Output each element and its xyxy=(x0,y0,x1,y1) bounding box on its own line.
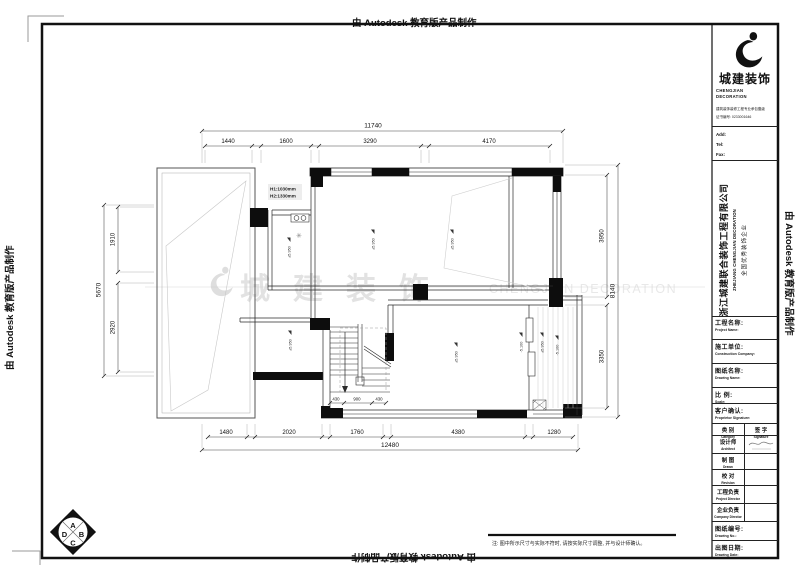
brand-en-line2: DECORATION xyxy=(716,94,747,99)
vent-symbol xyxy=(291,214,309,222)
field-drawing-date: 出图日期: Drawing Date: xyxy=(712,541,778,558)
chengjian-logo xyxy=(729,31,765,71)
contact-add: Add: xyxy=(716,132,726,137)
plant-symbol: ✳ xyxy=(296,232,302,240)
dim-left-total: 5670 xyxy=(96,282,103,297)
svg-text:3290: 3290 xyxy=(363,139,377,145)
svg-text:±5.950: ±5.950 xyxy=(455,351,459,363)
svg-text:B: B xyxy=(79,530,85,539)
svg-text:A: A xyxy=(70,521,76,530)
svg-text:C: C xyxy=(70,539,76,548)
field-construction-company: 施工单位: Construction Company: xyxy=(712,340,778,364)
signature-scribble xyxy=(744,436,778,454)
svg-text:±5.950: ±5.950 xyxy=(288,246,292,258)
svg-text:±5.950: ±5.950 xyxy=(451,238,455,250)
company-honor: 全国优秀装饰企业 xyxy=(740,175,748,325)
divider xyxy=(712,160,778,161)
field-scale: 比 例: Scale: xyxy=(712,388,778,404)
note-box: 注: 图中所示尺寸与实际不符时, 请按实际尺寸调整, 并与设计师确认。 xyxy=(488,535,676,547)
cert-line1: 建筑装饰装修工程专业承包壹级 xyxy=(716,107,765,112)
floorplan-canvas: 城建装饰 CHENGJIAN DECORATION xyxy=(0,0,800,566)
svg-text:1910: 1910 xyxy=(111,232,117,246)
staircase xyxy=(330,324,390,393)
company-name-en: ZHEJIANG CHENGJIAN DECORATION xyxy=(732,175,737,325)
autodesk-watermark-bottom: 由 Autodesk 教育版产品制作 xyxy=(356,550,476,562)
table-row-architect: 设计师 Architect xyxy=(712,436,744,454)
svg-text:430: 430 xyxy=(375,397,383,402)
drawing-sheet: 城建装饰 CHENGJIAN DECORATION xyxy=(0,0,800,566)
cert-line2: 证书编号: 0233001646 xyxy=(716,115,751,120)
svg-text:4380: 4380 xyxy=(451,430,465,436)
svg-text:3350: 3350 xyxy=(600,349,606,363)
svg-text:1760: 1760 xyxy=(350,430,364,436)
table-row-project-director: 工程负责 Project Director xyxy=(712,486,744,504)
svg-text:1440: 1440 xyxy=(221,139,235,145)
svg-text:4170: 4170 xyxy=(482,139,496,145)
svg-text:2920: 2920 xyxy=(111,320,117,334)
svg-text:±5.950: ±5.950 xyxy=(372,238,376,250)
sill-height-note: H1:1030mm H2:1330mm xyxy=(268,184,302,200)
field-project-name: 工程名称: Project Name: xyxy=(712,316,778,340)
company-name-cn: 浙江城建联合装饰工程有限公司 xyxy=(717,175,730,325)
svg-text:1600: 1600 xyxy=(279,139,293,145)
roof-slope-lines xyxy=(166,181,246,411)
table-header-category: 类 别 Category xyxy=(712,424,744,436)
svg-text:1280: 1280 xyxy=(547,430,561,436)
svg-text:1480: 1480 xyxy=(219,430,233,436)
company-name-block: 浙江城建联合装饰工程有限公司 ZHEJIANG CHENGJIAN DECORA… xyxy=(717,175,773,325)
note-text: 注: 图中所示尺寸与实际不符时, 请按实际尺寸调整, 并与设计师确认。 xyxy=(492,540,645,547)
architect-signature-cell xyxy=(744,436,778,454)
brand-en-line1: CHENGJIAN xyxy=(716,88,743,93)
svg-text:2020: 2020 xyxy=(282,430,296,436)
table-row-drawn: 制 图 Drawn xyxy=(712,454,744,470)
dim-right-total: 8140 xyxy=(610,283,617,298)
autodesk-watermark-left: 由 Autodesk 教育版产品制作 xyxy=(5,250,17,370)
svg-text:D: D xyxy=(62,530,68,539)
field-proprietor-signature: 客户确认: Proprietor Signature: xyxy=(712,404,778,424)
svg-text:H2:1330mm: H2:1330mm xyxy=(270,194,296,199)
svg-text:±5.950: ±5.950 xyxy=(541,341,545,353)
title-block: 城建装饰 CHENGJIAN DECORATION 建筑装饰装修工程专业承包壹级… xyxy=(712,24,778,558)
svg-text:430: 430 xyxy=(332,397,340,402)
field-drawing-no: 图纸编号: Drawing No.: xyxy=(712,522,778,541)
deck-boards xyxy=(538,307,573,408)
svg-text:-5.100: -5.100 xyxy=(520,342,524,353)
autodesk-watermark-top: 由 Autodesk 教育版产品制作 xyxy=(352,18,472,30)
orientation-compass: A B C D xyxy=(50,509,96,555)
brand-name: 城建装饰 xyxy=(712,70,778,87)
svg-text:-5.100: -5.100 xyxy=(556,345,560,356)
dim-top-total: 11740 xyxy=(364,123,382,130)
field-drawing-name: 图纸名称: Drawing Name: xyxy=(712,364,778,388)
dim-bottom-total: 12480 xyxy=(381,442,399,449)
table-header-signature: 签 字 Signature xyxy=(744,424,778,436)
autodesk-watermark-right: 由 Autodesk 教育版产品制作 xyxy=(782,211,794,331)
svg-text:3950: 3950 xyxy=(600,229,606,243)
divider xyxy=(712,126,778,127)
table-row-revision: 校 对 Revision xyxy=(712,470,744,486)
roof-slope-line-2 xyxy=(444,178,545,290)
svg-text:H1:1030mm: H1:1030mm xyxy=(270,187,296,192)
svg-text:±5.950: ±5.950 xyxy=(289,339,293,351)
contact-fax: Fax: xyxy=(716,152,725,157)
contact-tel: Tel: xyxy=(716,142,723,147)
table-row-company-director: 企业负责 Company Director xyxy=(712,504,744,522)
svg-text:900: 900 xyxy=(353,397,361,402)
